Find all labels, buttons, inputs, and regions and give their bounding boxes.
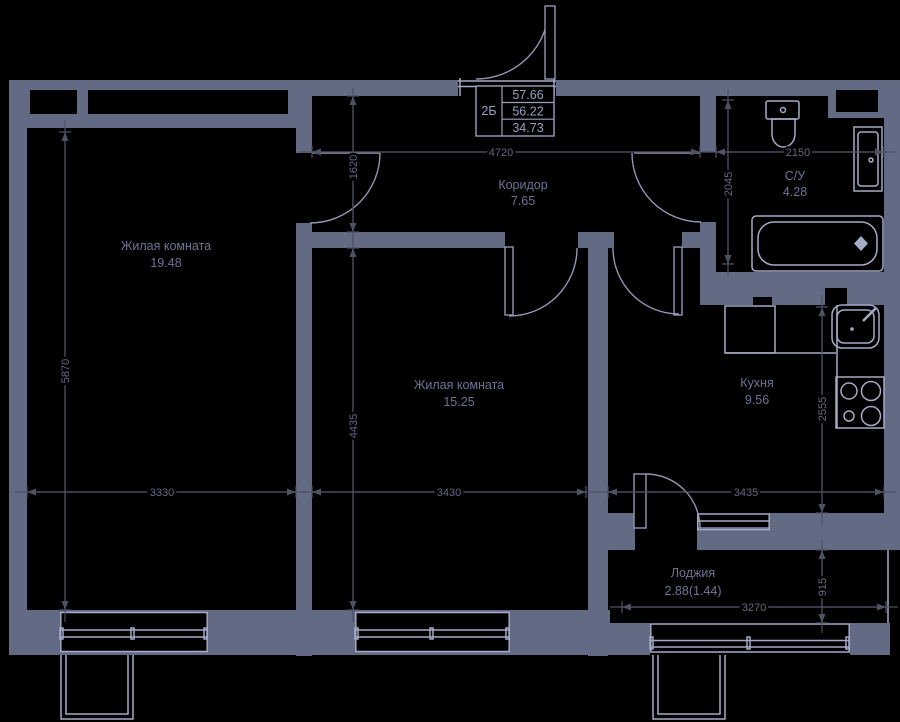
svg-text:4435: 4435: [348, 414, 360, 438]
wall-loggia-sill: [697, 527, 890, 550]
wall-segment: [300, 80, 458, 96]
svg-text:3430: 3430: [437, 487, 461, 499]
wall-shaft: [88, 90, 288, 114]
unit-label: 2Б: [481, 104, 496, 118]
wall-corridor-bottom: [312, 232, 505, 248]
svg-text:3435: 3435: [734, 487, 758, 499]
svg-text:2150: 2150: [786, 147, 810, 159]
svg-text:Кухня: Кухня: [740, 376, 773, 390]
svg-text:15.25: 15.25: [443, 395, 474, 409]
area-living: 34.73: [512, 121, 543, 135]
svg-text:С/У: С/У: [785, 169, 806, 183]
wall-room2-kitchen: [588, 248, 608, 656]
svg-text:2045: 2045: [723, 172, 735, 196]
svg-text:7.65: 7.65: [511, 194, 535, 208]
wall-bathroom-left: [700, 96, 716, 152]
svg-text:9.56: 9.56: [745, 393, 769, 407]
wall-shaft: [753, 297, 772, 305]
svg-text:Коридор: Коридор: [498, 178, 547, 192]
wall-left: [9, 80, 27, 655]
svg-text:4720: 4720: [489, 147, 513, 159]
entrance-door-leaf: [545, 6, 555, 79]
svg-text:Жилая комната: Жилая комната: [414, 378, 504, 392]
wall-segment: [556, 80, 828, 96]
svg-text:Лоджия: Лоджия: [671, 566, 715, 580]
area-total: 56.22: [512, 105, 543, 119]
svg-text:2555: 2555: [817, 397, 829, 421]
floorplan-page: 4720 2150 3330 3430 3435 3270: [0, 0, 900, 722]
svg-text:Жилая комната: Жилая комната: [121, 239, 211, 253]
wall-right: [884, 80, 900, 550]
wall-shaft: [30, 90, 77, 114]
floorplan-drawing: 4720 2150 3330 3430 3435 3270: [0, 0, 900, 722]
wall-loggia-top: [770, 513, 890, 527]
svg-text:2.88(1.44): 2.88(1.44): [665, 584, 722, 598]
svg-text:5870: 5870: [60, 359, 72, 383]
wall-room1-right: [296, 223, 312, 656]
svg-text:19.48: 19.48: [150, 256, 181, 270]
wall-room1-right: [296, 96, 312, 153]
wall-loggia-top: [608, 513, 635, 550]
svg-text:1620: 1620: [348, 155, 360, 179]
wall-corridor-bottom: [578, 232, 614, 248]
wall-loggia-pier: [850, 623, 890, 655]
svg-text:3270: 3270: [742, 602, 766, 614]
wall-bathroom-bottom: [700, 272, 890, 305]
wall-shaft: [836, 90, 878, 112]
wall-shaft: [825, 288, 847, 305]
svg-text:915: 915: [817, 578, 829, 596]
wall-loggia-pier: [598, 623, 650, 655]
svg-text:3330: 3330: [150, 487, 174, 499]
wall-corridor-bottom: [682, 232, 700, 248]
area-total-with-balcony: 57.66: [512, 88, 543, 102]
svg-text:4.28: 4.28: [783, 185, 807, 199]
info-table: 2Б 57.66 56.22 34.73: [476, 86, 554, 136]
